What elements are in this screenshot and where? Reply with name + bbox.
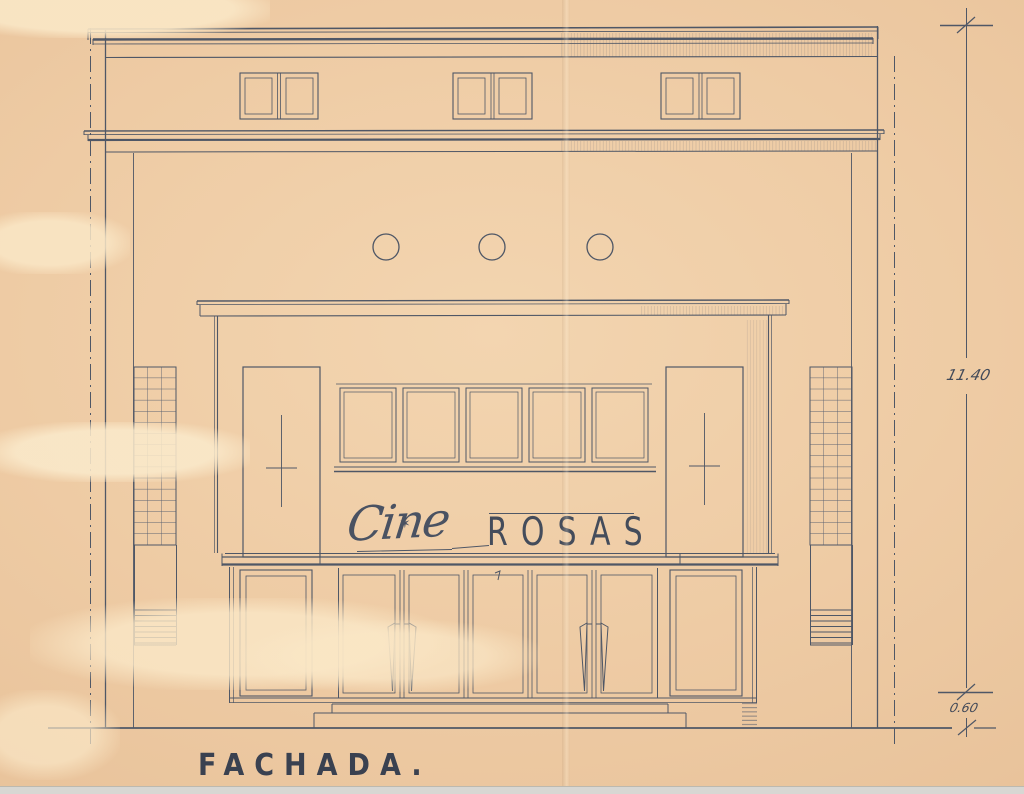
left-pylon [243, 367, 320, 557]
dimension-value-base: 0.60 [948, 700, 980, 715]
porthole-2 [479, 234, 505, 260]
cinema-sign-script: Cine [344, 492, 452, 553]
cinema-sign-name: ROSAS [487, 510, 656, 556]
left-pylon-cross [266, 415, 297, 507]
attic-window-pair-1 [240, 73, 318, 119]
entrance-steps [230, 698, 756, 728]
porthole-windows [373, 234, 613, 260]
porthole-1 [373, 234, 399, 260]
left-side-panel [240, 570, 312, 696]
right-side-panel [670, 570, 742, 696]
door-handles-right [580, 623, 608, 691]
star-icon: ✶ [399, 516, 411, 532]
attic-window-pair-2 [453, 73, 532, 119]
door-handles-left [388, 623, 416, 691]
blueprint-paper: Cine ✶ ROSAS FACHADA. 11.40 0.60 [0, 0, 1024, 794]
entrance-block-cornice [197, 300, 789, 316]
attic-windows [240, 73, 740, 119]
right-grille-panel [810, 367, 853, 645]
dimension-value-height: 11.40 [945, 366, 992, 384]
storefront [230, 567, 758, 728]
drawing-caption: FACHADA. [198, 748, 432, 783]
left-grille-panel [134, 367, 177, 645]
mezzanine-window-band [334, 384, 656, 472]
facade-drawing [0, 0, 1024, 794]
porthole-3 [587, 234, 613, 260]
small-mark [495, 571, 500, 580]
right-pylon [666, 367, 743, 557]
belt-course [84, 130, 884, 152]
attic-window-pair-3 [661, 73, 740, 119]
right-pylon-cross [689, 413, 720, 505]
top-cornice [88, 27, 878, 58]
scan-edge-strip [0, 786, 1024, 794]
